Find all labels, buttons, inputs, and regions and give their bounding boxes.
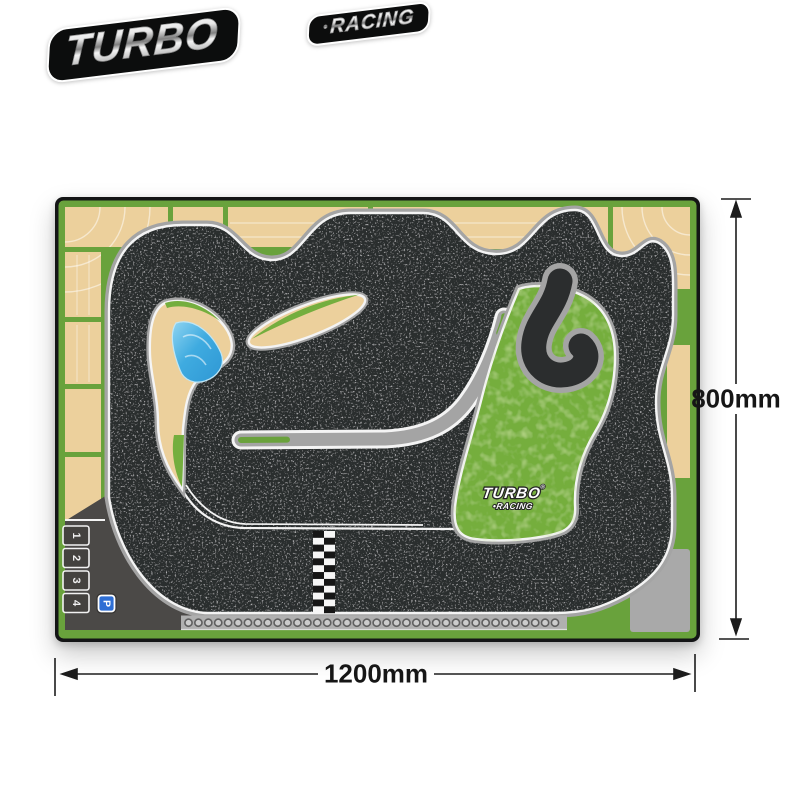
- tire-icon: [442, 619, 449, 626]
- grid-number-3: 3: [70, 577, 82, 583]
- finish-line-cell: [324, 579, 335, 586]
- right-arrow-icon: [674, 669, 689, 679]
- tire-icon: [492, 619, 499, 626]
- track-mat-graphic: TURBO ® •RACING 1 2 3: [55, 197, 700, 642]
- tire-barrier: [181, 616, 567, 631]
- tire-icon: [314, 619, 321, 626]
- height-dimension-label: 800mm: [691, 384, 781, 415]
- tire-icon: [403, 619, 410, 626]
- tire-icon: [225, 619, 232, 626]
- finish-line-cell: [313, 593, 324, 600]
- finish-line-cell: [313, 579, 324, 586]
- finish-line-cell: [324, 586, 335, 593]
- tire-icon: [234, 619, 241, 626]
- tire-icon: [423, 619, 430, 626]
- finish-line-cell: [324, 565, 335, 572]
- grid-number-4: 4: [70, 600, 82, 607]
- finish-line-cell: [313, 565, 324, 572]
- brand-logo-top-shape: TURBO: [46, 6, 242, 85]
- finish-line-cell: [324, 538, 335, 545]
- grid-number-2: 2: [70, 555, 82, 561]
- tire-icon: [254, 619, 261, 626]
- tire-icon: [195, 619, 202, 626]
- tire-icon: [532, 619, 539, 626]
- brand-logo-bottom-shape: •RACING: [306, 1, 431, 48]
- finish-line-cell: [324, 531, 335, 538]
- tire-icon: [472, 619, 479, 626]
- tire-icon: [284, 619, 291, 626]
- product-image: TURBO •RACING: [0, 0, 800, 800]
- track-mat: TURBO ® •RACING 1 2 3: [55, 197, 700, 642]
- brand-logo-racing-text: RACING: [329, 6, 414, 39]
- left-arrow-icon: [62, 669, 77, 679]
- tire-icon: [294, 619, 301, 626]
- tire-icon: [541, 619, 548, 626]
- tire-icon: [502, 619, 509, 626]
- tire-icon: [551, 619, 558, 626]
- parking-sign: P: [97, 594, 116, 613]
- tire-icon: [324, 619, 331, 626]
- tire-icon: [522, 619, 529, 626]
- tire-icon: [373, 619, 380, 626]
- tire-icon: [462, 619, 469, 626]
- tire-icon: [333, 619, 340, 626]
- tire-icon: [205, 619, 212, 626]
- finish-line-cell: [313, 552, 324, 559]
- finish-line-cell: [324, 606, 335, 613]
- tire-icon: [304, 619, 311, 626]
- finish-line-cell: [313, 538, 324, 545]
- tire-icon: [185, 619, 192, 626]
- tire-icon: [215, 619, 222, 626]
- finish-line-cell: [324, 593, 335, 600]
- tire-icon: [433, 619, 440, 626]
- tire-icon: [512, 619, 519, 626]
- tire-icon: [383, 619, 390, 626]
- finish-line-cell: [324, 600, 335, 607]
- finish-line-cell: [313, 531, 324, 538]
- finish-line-cell: [313, 606, 324, 613]
- finish-line-cell: [324, 572, 335, 579]
- finish-line-cell: [313, 600, 324, 607]
- finish-line-cell: [324, 552, 335, 559]
- finish-line-cell: [313, 545, 324, 552]
- tire-icon: [363, 619, 370, 626]
- tire-icon: [343, 619, 350, 626]
- brand-logo: TURBO •RACING: [44, 0, 433, 84]
- tire-icon: [274, 619, 281, 626]
- grid-number-1: 1: [70, 532, 82, 538]
- finish-line-cell: [313, 586, 324, 593]
- finish-line-cell: [324, 545, 335, 552]
- brand-logo-dot: •: [323, 19, 329, 34]
- mat-logo-racing-text: •RACING: [492, 501, 533, 511]
- parking-sign-label: P: [101, 600, 113, 607]
- tire-icon: [482, 619, 489, 626]
- tire-icon: [413, 619, 420, 626]
- tire-icon: [244, 619, 251, 626]
- finish-line-cell: [313, 572, 324, 579]
- tire-icon: [264, 619, 271, 626]
- finish-line-cell: [324, 558, 335, 565]
- tire-icon: [452, 619, 459, 626]
- finish-line: [313, 531, 335, 613]
- tire-icon: [353, 619, 360, 626]
- tire-icon: [393, 619, 400, 626]
- finish-line-cell: [313, 558, 324, 565]
- up-arrow-icon: [731, 202, 741, 217]
- down-arrow-icon: [731, 619, 741, 634]
- width-dimension-label: 1200mm: [324, 659, 428, 690]
- brand-logo-turbo-text: TURBO: [64, 8, 220, 74]
- mat-logo-turbo-text: TURBO: [481, 485, 542, 502]
